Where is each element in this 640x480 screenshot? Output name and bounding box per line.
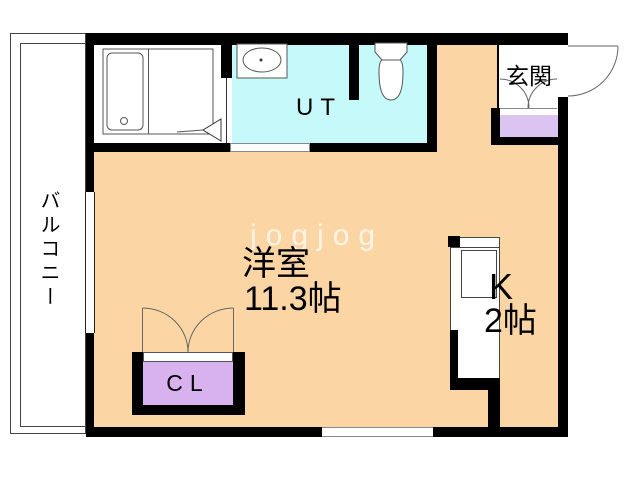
outer-wall-left-upper <box>86 33 94 192</box>
bath-ut-door-frame <box>226 78 227 143</box>
ut-door-opening <box>230 143 310 152</box>
outer-wall-bottom-right <box>433 427 568 437</box>
entrance-label: 玄関 <box>499 64 559 88</box>
bathroom <box>94 45 232 143</box>
closet-label: CL <box>143 371 233 395</box>
main-room-size: 11.3帖 <box>244 282 342 318</box>
closet-frame-bottom <box>132 405 245 415</box>
outer-wall-right-top <box>558 33 568 45</box>
kitchen-size: 2帖 <box>484 304 537 340</box>
window-balcony <box>85 192 95 333</box>
kitchen-counter-edge <box>450 247 500 248</box>
kitchen-mainroom-wall <box>488 378 500 437</box>
kitchen-wall-stub-top <box>448 236 460 247</box>
shoe-cabinet <box>500 115 558 137</box>
balcony-label: バルコニー <box>37 190 58 310</box>
ut-mainroom-wall <box>427 45 437 152</box>
entrance-bottom-wall <box>491 137 560 145</box>
bath-ut-partition-stub <box>221 45 232 78</box>
closet-shelf-strip <box>143 352 233 362</box>
main-room-label: 洋室 <box>242 247 310 283</box>
outer-wall-top <box>86 33 568 45</box>
ut-partition-stub <box>349 45 359 100</box>
entrance-threshold <box>500 108 557 109</box>
outer-wall-right-main <box>558 97 568 437</box>
ut-label: UT <box>296 95 342 120</box>
outer-wall-left-lower <box>86 333 94 437</box>
window-bottom <box>322 427 433 437</box>
floor-plan: jogjog バルコニー 洋室 11.3帖 K 2帖 UT 玄関 CL <box>0 0 640 480</box>
entrance-door-swing-icon <box>568 46 618 96</box>
kitchen-label: K <box>489 268 513 306</box>
outer-wall-bottom-left <box>86 427 322 437</box>
